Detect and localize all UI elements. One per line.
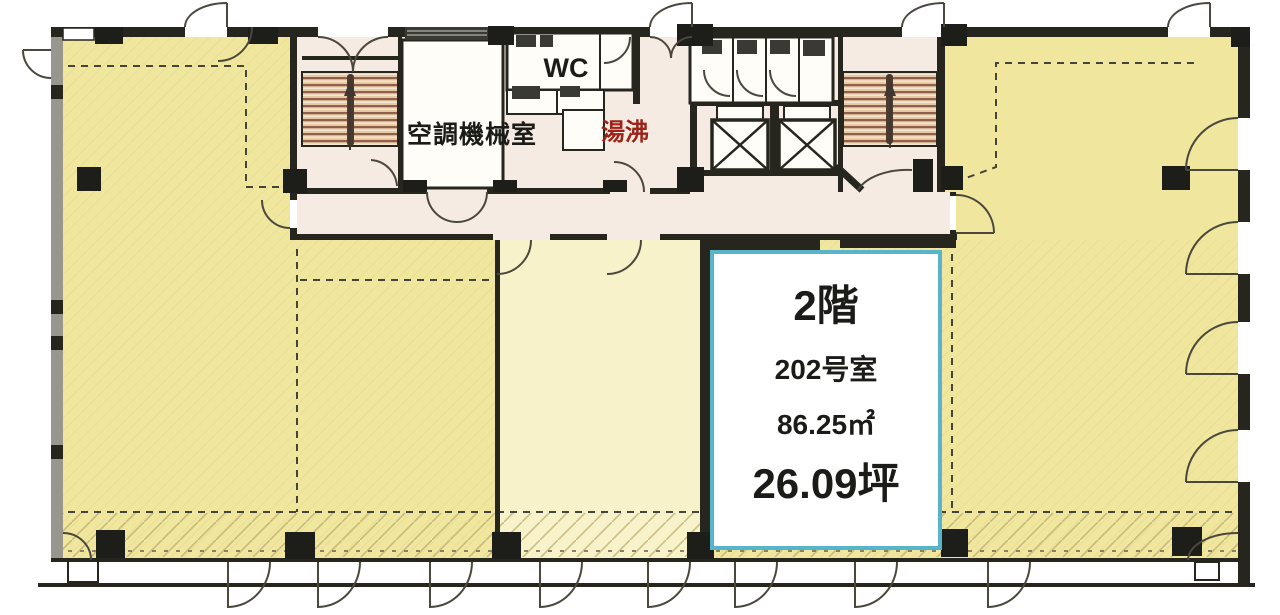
hot-water-label: 湯沸: [601, 119, 649, 146]
top-wall-opening: [1168, 27, 1210, 37]
column: [941, 24, 967, 46]
wall-mullion: [51, 300, 63, 314]
column: [493, 180, 517, 192]
right-wing-top: [945, 37, 1238, 192]
bottom-wall-outer: [38, 583, 1255, 587]
left-curtain-wall: [51, 37, 63, 558]
sink-fixture-icon: [560, 86, 580, 97]
column: [941, 166, 963, 190]
column: [913, 159, 933, 192]
louver-vent-icon: [405, 27, 489, 40]
column: [403, 180, 427, 192]
wc-label: WC: [544, 53, 589, 83]
column: [687, 532, 714, 559]
corridor-left-door-gap: [290, 200, 297, 228]
unit-top-wall: [700, 240, 820, 250]
right-wall-opening: [1238, 430, 1250, 482]
hvac-room: [402, 40, 503, 188]
column: [1172, 527, 1202, 556]
corridor-bottom-wall: [660, 234, 957, 240]
column: [1231, 27, 1250, 47]
column: [941, 529, 968, 557]
column: [603, 180, 627, 192]
hot-water-room: [563, 110, 604, 150]
column: [283, 169, 307, 193]
unit-top-wall: [840, 240, 956, 248]
pale-middle-room: [500, 240, 700, 558]
floor-plan: 2階 202号室 86.25㎡ 26.09坪 WC 空調機械室 湯沸: [0, 0, 1280, 615]
corridor-bottom-wall: [290, 234, 493, 240]
toilet-fixture-icon: [770, 40, 790, 54]
unit-202: 2階 202号室 86.25㎡ 26.09坪: [712, 252, 940, 548]
wall-mullion: [51, 445, 63, 459]
unit-area-sqm-label: 86.25㎡: [777, 408, 875, 440]
top-wall-opening: [185, 27, 227, 37]
corridor-bottom-wall: [550, 234, 607, 240]
wall-niche: [68, 561, 98, 582]
column: [677, 24, 713, 46]
column: [95, 27, 123, 44]
toilet-fixture-icon: [540, 35, 553, 47]
column: [488, 26, 514, 45]
elevator-sill: [717, 106, 763, 120]
top-wall-opening: [318, 27, 388, 37]
column: [96, 530, 125, 558]
toilet-fixture-icon: [803, 40, 825, 56]
wall-niche: [63, 28, 94, 40]
right-wall-opening: [1238, 222, 1250, 274]
core-left-wall: [290, 37, 297, 192]
column: [285, 532, 315, 559]
unit-room-number-label: 202号室: [775, 353, 878, 385]
middle-room-wall: [495, 240, 500, 533]
wall-niche: [1195, 562, 1219, 580]
column: [492, 532, 521, 559]
hvac-room-label: 空調機械室: [407, 120, 537, 149]
floor-plan-page: 2階 202号室 86.25㎡ 26.09坪 WC 空調機械室 湯沸: [0, 0, 1280, 615]
toilet-fixture-icon: [516, 35, 536, 47]
top-wall-opening: [902, 27, 944, 37]
right-wall: [1238, 27, 1250, 587]
elevator-sill: [784, 106, 830, 120]
unit-area-tsubo-label: 26.09坪: [752, 460, 899, 507]
wall-mullion: [51, 336, 63, 350]
column: [77, 167, 101, 191]
right-wall-opening: [1238, 118, 1250, 170]
column: [677, 167, 704, 192]
right-wall-opening: [1238, 322, 1250, 374]
sink-fixture-icon: [512, 86, 540, 99]
toilet-fixture-icon: [737, 40, 757, 54]
elevator-hall-left-wall: [690, 100, 697, 170]
unit-floor-label: 2階: [793, 282, 858, 329]
wall-mullion: [51, 85, 63, 99]
corridor-right-door-gap: [950, 196, 956, 230]
bottom-wall-inner: [51, 558, 1250, 562]
